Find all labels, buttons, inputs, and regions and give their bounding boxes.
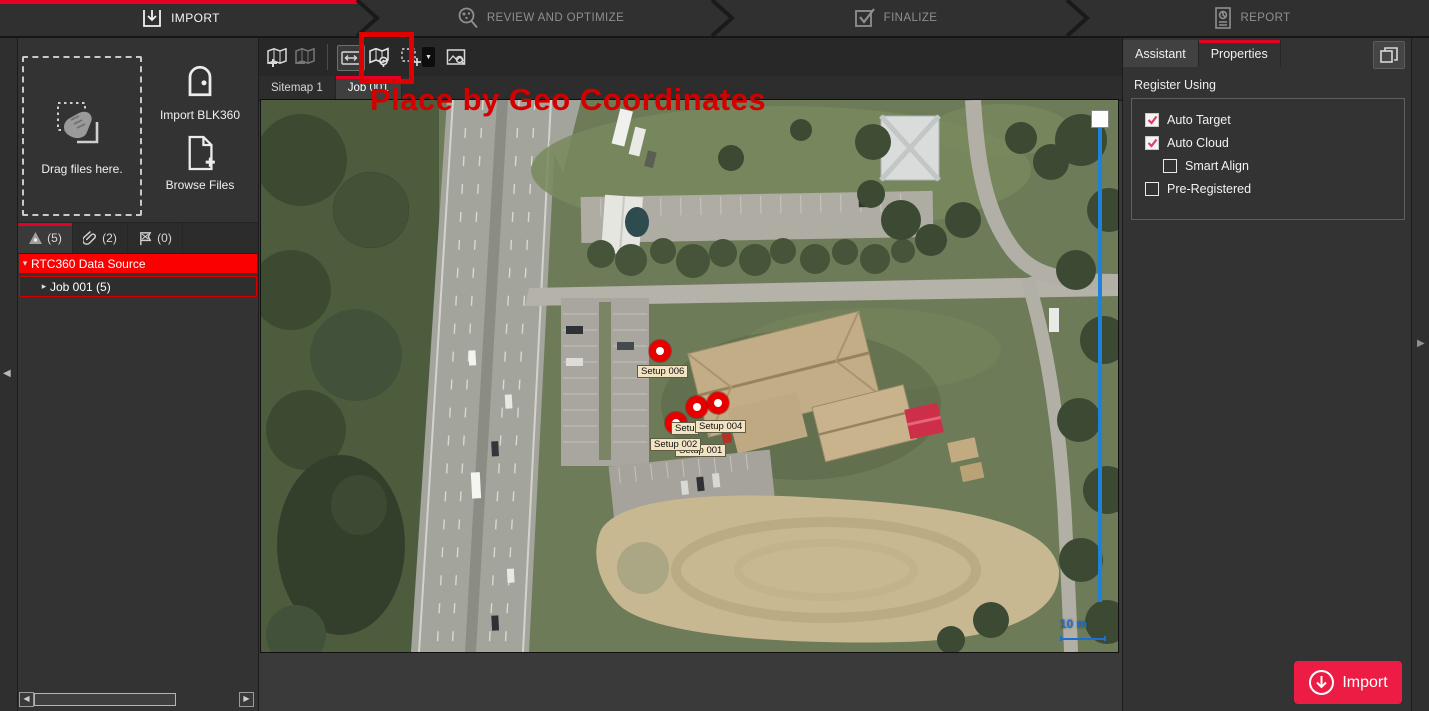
left-panel-horizontal-scrollbar[interactable]: ◀ ▶	[19, 691, 254, 706]
checkbox-checked-icon[interactable]	[1145, 136, 1159, 150]
file-plus-icon	[184, 134, 216, 172]
option-label: Smart Align	[1185, 159, 1249, 173]
tree-item-rtc360-data-source[interactable]: ▾ RTC360 Data Source	[19, 254, 257, 273]
tab-assistant[interactable]: Assistant	[1123, 40, 1199, 67]
left-collapse-strip[interactable]: ◀	[0, 38, 18, 711]
map-scale-label: 10 m	[1060, 617, 1087, 631]
sitemap-viewer-area: ▼ Sitemap 1 Job 001	[259, 38, 1122, 711]
option-label: Auto Target	[1167, 113, 1231, 127]
option-label: Pre-Registered	[1167, 182, 1251, 196]
sitemap-canvas[interactable]: Setup 006 Setu Setup 004 Setup 001 Setup…	[261, 100, 1118, 652]
import-source-panel: Drag files here. Import BLK360 Browse Fi…	[18, 38, 259, 711]
select-area-dropdown-button[interactable]: ▼	[422, 47, 435, 67]
expanded-twisty-icon[interactable]: ▾	[19, 258, 31, 269]
annotation-text: Place by Geo Coordinates	[370, 82, 766, 118]
dropzone-label: Drag files here.	[41, 162, 122, 176]
layered-windows-icon	[1380, 47, 1398, 63]
import-button-label: Import	[1342, 674, 1387, 692]
option-smart-align[interactable]: Smart Align	[1163, 159, 1249, 173]
setup-marker[interactable]	[686, 396, 708, 418]
expand-right-arrow-icon[interactable]: ▶	[1417, 338, 1425, 349]
image-adjust-button[interactable]	[443, 45, 469, 69]
tree-item-job-001[interactable]: ▸ Job 001 (5)	[19, 276, 257, 297]
scale-reference-line[interactable]	[1098, 114, 1102, 602]
option-pre-registered[interactable]: Pre-Registered	[1145, 182, 1251, 196]
scrollbar-thumb[interactable]	[34, 693, 176, 706]
workflow-step-review[interactable]: REVIEW AND OPTIMIZE	[365, 0, 715, 36]
option-auto-cloud[interactable]: Auto Cloud	[1145, 136, 1229, 150]
import-download-icon	[140, 7, 164, 29]
collapsed-twisty-icon[interactable]: ▸	[38, 281, 50, 292]
workflow-step-label: REVIEW AND OPTIMIZE	[487, 12, 624, 24]
workflow-step-label: FINALIZE	[884, 12, 938, 24]
right-panel-tabs: Assistant Properties	[1123, 40, 1411, 67]
tab-label: Sitemap 1	[271, 82, 323, 94]
tab-links[interactable]: (2)	[73, 223, 128, 253]
targets-icon	[28, 231, 43, 245]
remove-sitemap-button[interactable]	[292, 45, 318, 69]
annotation-highlight-box	[359, 32, 414, 84]
tab-label: Properties	[1211, 47, 1268, 61]
tree-item-label: RTC360 Data Source	[31, 257, 146, 271]
setup-marker[interactable]	[649, 340, 671, 362]
checkbox-unchecked-icon[interactable]	[1163, 159, 1177, 173]
tab-sitemap-1[interactable]: Sitemap 1	[259, 76, 336, 100]
chevron-separator	[1065, 0, 1091, 36]
workflow-step-finalize[interactable]: FINALIZE	[720, 0, 1070, 36]
checkbox-unchecked-icon[interactable]	[1145, 182, 1159, 196]
tab-constraints[interactable]: (0)	[128, 223, 183, 253]
chevron-separator	[355, 0, 381, 36]
drag-hand-icon	[53, 96, 111, 154]
tree-item-label: Job 001 (5)	[50, 280, 111, 294]
browse-files-label: Browse Files	[166, 178, 235, 192]
map-scale-bar	[1060, 636, 1106, 641]
setup-label[interactable]: Setup 004	[695, 420, 746, 433]
register-using-title: Register Using	[1134, 78, 1216, 92]
scroll-right-button[interactable]: ▶	[239, 692, 254, 707]
source-list-tabs: (5) (2) (0)	[18, 222, 258, 254]
scroll-left-button[interactable]: ◀	[19, 692, 34, 707]
collapse-left-arrow-icon[interactable]: ◀	[3, 368, 11, 379]
tab-count: (5)	[47, 231, 62, 245]
constraints-icon	[138, 231, 153, 246]
checkbox-checked-icon[interactable]	[1145, 113, 1159, 127]
tab-properties[interactable]: Properties	[1199, 40, 1281, 67]
links-icon	[83, 231, 98, 246]
chevron-separator	[710, 0, 736, 36]
data-source-tree: ▾ RTC360 Data Source ▸ Job 001 (5)	[18, 254, 258, 297]
properties-panel: Assistant Properties Register Using Auto…	[1122, 38, 1411, 711]
tab-targets[interactable]: (5)	[18, 223, 73, 253]
workflow-step-label: REPORT	[1240, 12, 1290, 24]
option-auto-target[interactable]: Auto Target	[1145, 113, 1231, 127]
undock-panel-button[interactable]	[1373, 41, 1405, 69]
import-blk360-label: Import BLK360	[160, 108, 240, 122]
blk360-device-icon	[185, 60, 215, 102]
setup-marker[interactable]	[707, 392, 729, 414]
tab-count: (2)	[102, 231, 117, 245]
browse-files-button[interactable]: Browse Files	[146, 134, 254, 192]
import-button[interactable]: Import	[1294, 661, 1402, 704]
tab-count: (0)	[157, 231, 172, 245]
tab-label: Assistant	[1135, 47, 1186, 61]
finalize-check-icon	[853, 7, 877, 29]
report-document-icon	[1213, 6, 1233, 30]
import-circle-arrow-icon	[1308, 669, 1335, 696]
right-collapse-strip[interactable]: ▶	[1411, 38, 1429, 711]
setup-label[interactable]: Setup 002	[650, 438, 701, 451]
setup-label[interactable]: Setup 006	[637, 365, 688, 378]
scale-line-handle[interactable]	[1091, 110, 1109, 128]
workflow-step-import[interactable]: IMPORT	[0, 0, 360, 36]
review-magnifier-icon	[456, 6, 480, 30]
workflow-step-report[interactable]: REPORT	[1075, 0, 1429, 36]
aerial-map-image	[261, 100, 1118, 652]
workflow-step-label: IMPORT	[171, 11, 220, 25]
toolbar-separator	[327, 44, 328, 70]
import-blk360-button[interactable]: Import BLK360	[146, 60, 254, 122]
cyclone-register360-window: IMPORT REVIEW AND OPTIMIZE FINALIZE	[0, 0, 1429, 711]
add-sitemap-button[interactable]	[264, 45, 290, 69]
workflow-bar: IMPORT REVIEW AND OPTIMIZE FINALIZE	[0, 0, 1429, 38]
drag-files-dropzone[interactable]: Drag files here.	[22, 56, 142, 216]
option-label: Auto Cloud	[1167, 136, 1229, 150]
